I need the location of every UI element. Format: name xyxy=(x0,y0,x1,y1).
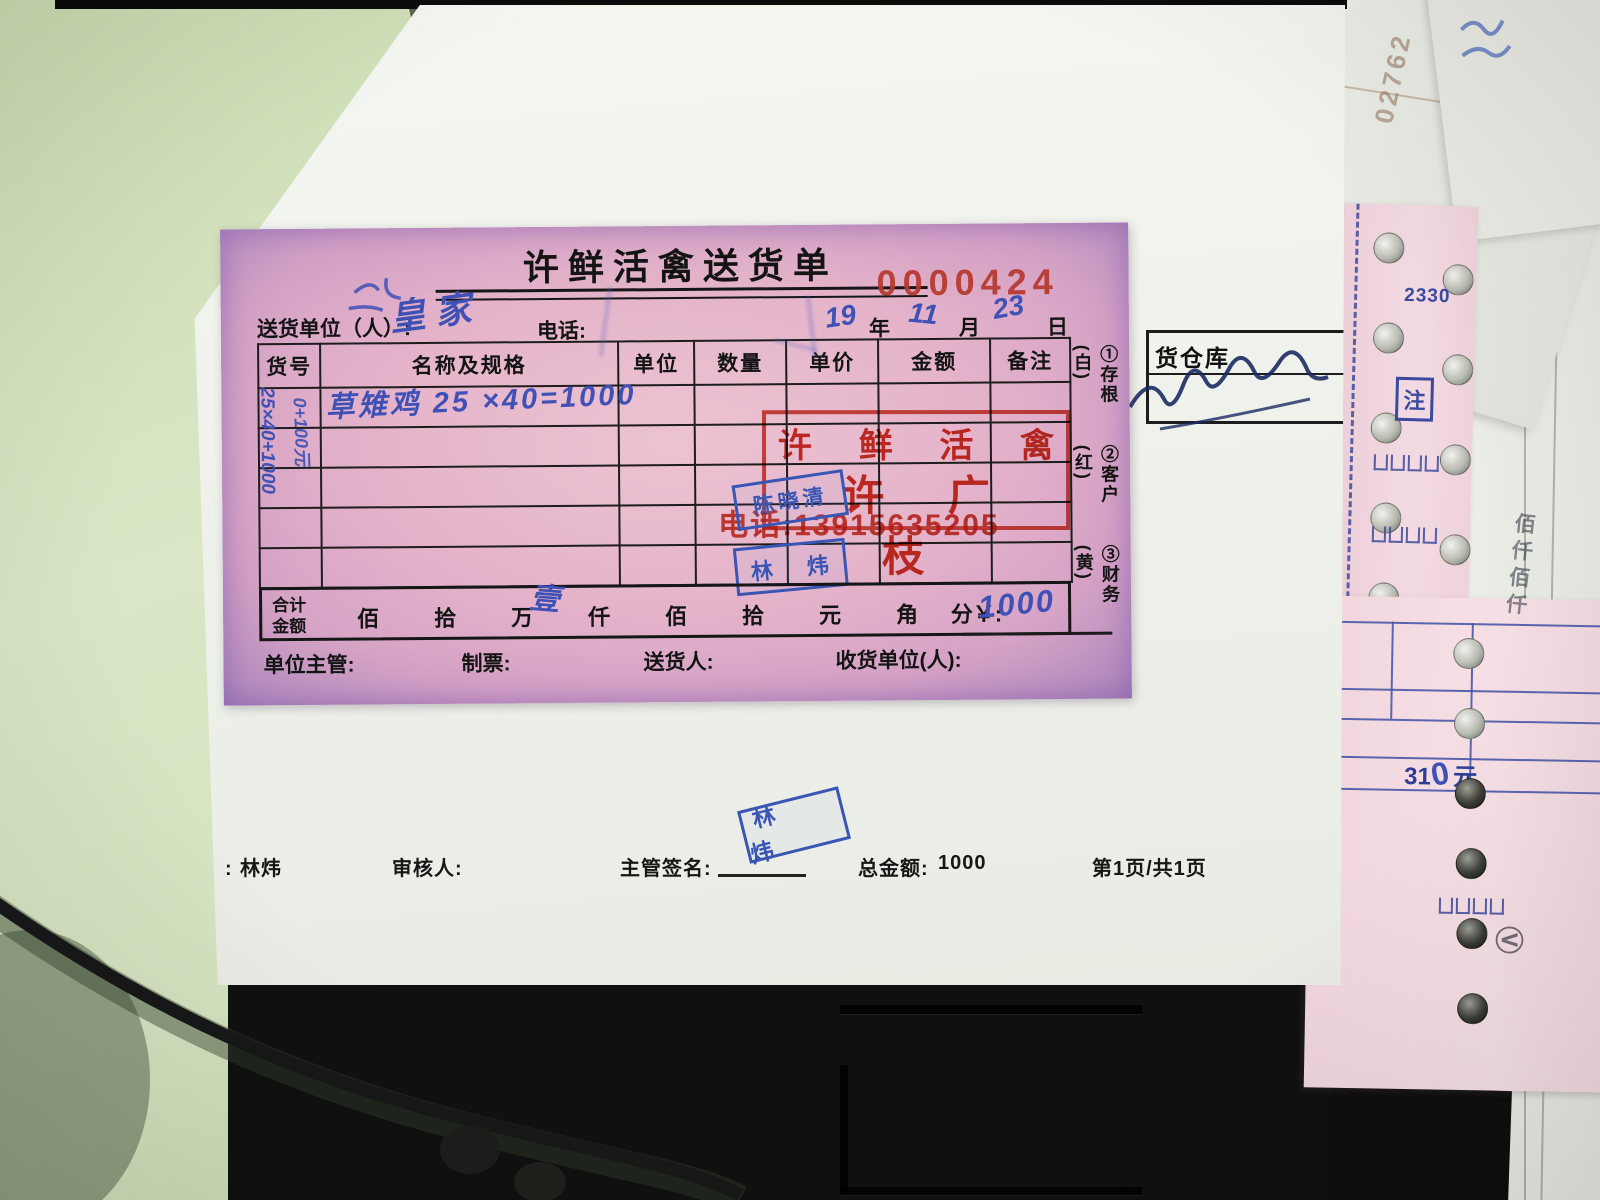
col-remark: 备注 xyxy=(990,338,1070,383)
col-item-no: 货号 xyxy=(258,344,320,388)
form-rule xyxy=(1311,687,1600,694)
copy-legend: ①存根(白) ②客户(红) ③财务(黄) xyxy=(1069,345,1123,645)
unit-shi: 拾 xyxy=(434,601,456,633)
stamp-text: 陈晓清 xyxy=(751,480,830,521)
handwritten-yi: 壹 xyxy=(528,573,561,619)
stamp-char: 许 xyxy=(778,418,812,467)
faint-stamp-number: 02762 xyxy=(1368,30,1418,127)
receiver-label: 收货单位(人): xyxy=(835,644,961,675)
punch-hole xyxy=(1454,708,1486,740)
carbon-marks xyxy=(1439,898,1504,915)
unit-bai: 佰 xyxy=(357,601,379,633)
table-header-row: 货号 名称及规格 单位 数量 单价 金额 备注 xyxy=(258,338,1070,388)
lin-wei-stamp-backing: 林 炜 xyxy=(737,786,851,864)
totals-units: 佰 拾 万 仟 佰 拾 元 角 xyxy=(357,597,918,633)
serial-number: 0000424 xyxy=(876,261,1058,304)
signature-scribble xyxy=(1120,345,1360,455)
unit-shi2: 拾 xyxy=(742,598,764,630)
punch-hole xyxy=(1442,354,1474,386)
margin-handwriting: 25×40+1000 xyxy=(255,387,278,494)
stamp-char: 禽 xyxy=(1020,418,1054,467)
form-rule xyxy=(1390,622,1394,719)
form-footer-labels: 单位主管: 制票: 送货人: 收货单位(人): xyxy=(259,643,1099,650)
totals-caption-top: 合计 xyxy=(272,595,306,616)
dark-object-corner xyxy=(1328,1085,1512,1200)
unit-yuan: 元 xyxy=(819,598,841,630)
form-rule xyxy=(1312,620,1600,627)
carbon-marks xyxy=(1374,454,1439,472)
unit-bai2: 佰 xyxy=(665,599,687,631)
date-month-value: 11 xyxy=(907,297,939,332)
pink-strip-bottom: 310 元 xyxy=(1304,595,1600,1092)
reviewer-label: 审核人: xyxy=(392,852,463,881)
date-day-value: 23 xyxy=(990,289,1026,326)
punch-hole xyxy=(1457,993,1489,1025)
punch-hole xyxy=(1455,778,1487,810)
copy-red: ②客户(红) xyxy=(1070,444,1123,526)
punch-hole xyxy=(1456,918,1488,950)
totals-row: 合计 金额 佰 拾 万 仟 佰 拾 元 角 分￥: 壹 1000 xyxy=(259,581,1071,641)
stamp-company-name: 许 鲜 活 禽 xyxy=(778,418,1054,467)
date-year-value: 19 xyxy=(823,299,859,335)
punch-hole xyxy=(1373,322,1405,354)
col-qty: 数量 xyxy=(694,340,786,385)
totals-caption: 合计 金额 xyxy=(272,595,306,637)
photo-delivery-receipt-scene: 02762 2330 xyxy=(0,0,1600,1200)
page-indicator: 第1页/共1页 xyxy=(1092,852,1207,881)
stamp-char: 鲜 xyxy=(859,418,893,467)
punch-hole xyxy=(1439,534,1471,566)
note-column-box: 注 xyxy=(1395,377,1434,422)
note-char: 注 xyxy=(1403,383,1426,416)
carbon-marks xyxy=(1372,526,1437,544)
stamp-char: 活 xyxy=(939,418,973,467)
delivery-note-form: 许鲜活禽送货单 0000424 送货单位（人）: 皇家 电话: 19 年 11 … xyxy=(220,222,1132,705)
supervisor-label: 单位主管: xyxy=(263,649,354,680)
circled-mark: Ⓥ xyxy=(1490,926,1530,954)
blue-scribble xyxy=(1439,0,1569,102)
punch-hole xyxy=(1373,232,1405,264)
stamp-text: 林 炜 xyxy=(737,546,844,588)
unit-qian: 仟 xyxy=(588,600,610,632)
copy-yellow: ③财务(黄) xyxy=(1071,544,1124,626)
form-title: 许鲜活禽送货单 xyxy=(410,236,950,292)
handwritten-amount: 1000 xyxy=(977,583,1057,626)
sign-label: 主管签名: xyxy=(620,852,712,881)
unit-jiao: 角 xyxy=(896,597,918,629)
col-amount: 金额 xyxy=(878,339,990,384)
signature-line xyxy=(718,874,806,877)
ticket-maker-label: 制票: xyxy=(461,647,510,677)
printer-ridge xyxy=(840,1065,848,1193)
punch-hole xyxy=(1455,848,1487,880)
maker-name: 林炜 xyxy=(240,852,282,881)
amount-handwritten-zero: 0 xyxy=(1428,754,1453,794)
copy-white: ①存根(白) xyxy=(1069,345,1122,427)
stamp-text: 林 炜 xyxy=(738,780,850,870)
sender-scribble xyxy=(340,264,480,325)
printer-ridge xyxy=(840,1187,1142,1195)
margin-handwriting: 0+100元 xyxy=(287,397,316,467)
total-value: 1000 xyxy=(938,852,987,875)
totals-caption-bottom: 金额 xyxy=(272,616,306,637)
punch-hole xyxy=(1453,638,1485,670)
strip-serial: 2330 xyxy=(1404,285,1451,308)
total-label: 总金额: xyxy=(858,852,929,881)
deliverer-label: 送货人: xyxy=(643,646,713,677)
punch-hole xyxy=(1440,444,1472,476)
printer-ridge xyxy=(840,1005,1142,1014)
amount-print: 31 xyxy=(1404,763,1431,790)
